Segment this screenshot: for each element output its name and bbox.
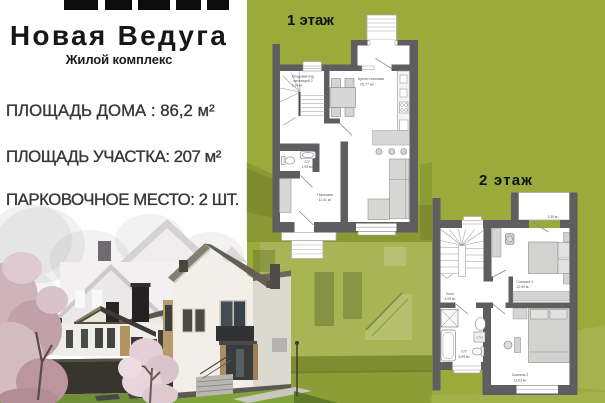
svg-text:12.90 м²: 12.90 м²: [517, 285, 531, 289]
svg-text:С/У: С/У: [461, 350, 467, 354]
svg-text:5,99 м²: 5,99 м²: [458, 355, 470, 359]
svg-text:2.30 м²: 2.30 м²: [548, 215, 560, 219]
svg-text:11.01 м²: 11.01 м²: [319, 198, 333, 202]
svg-text:Кладовая под: Кладовая под: [292, 75, 314, 79]
svg-text:Кухня столовая: Кухня столовая: [358, 77, 384, 81]
svg-text:С/У: С/У: [304, 160, 310, 164]
svg-text:13,63 м²: 13,63 м²: [514, 379, 528, 383]
svg-text:Холл: Холл: [446, 292, 454, 296]
svg-text:4,05 м²: 4,05 м²: [444, 297, 456, 301]
svg-text:СТ.М: СТ.М: [476, 336, 483, 340]
svg-text:25,77 м²: 25,77 м²: [360, 83, 374, 87]
svg-text:1,95 м²: 1,95 м²: [301, 165, 313, 169]
svg-text:лестницей 2: лестницей 2: [293, 79, 313, 83]
svg-text:3.14 м²: 3.14 м²: [291, 84, 303, 88]
svg-text:Спальня 2: Спальня 2: [512, 373, 529, 377]
svg-text:Спальня 1: Спальня 1: [517, 280, 534, 284]
svg-text:Прихожая: Прихожая: [317, 193, 333, 197]
